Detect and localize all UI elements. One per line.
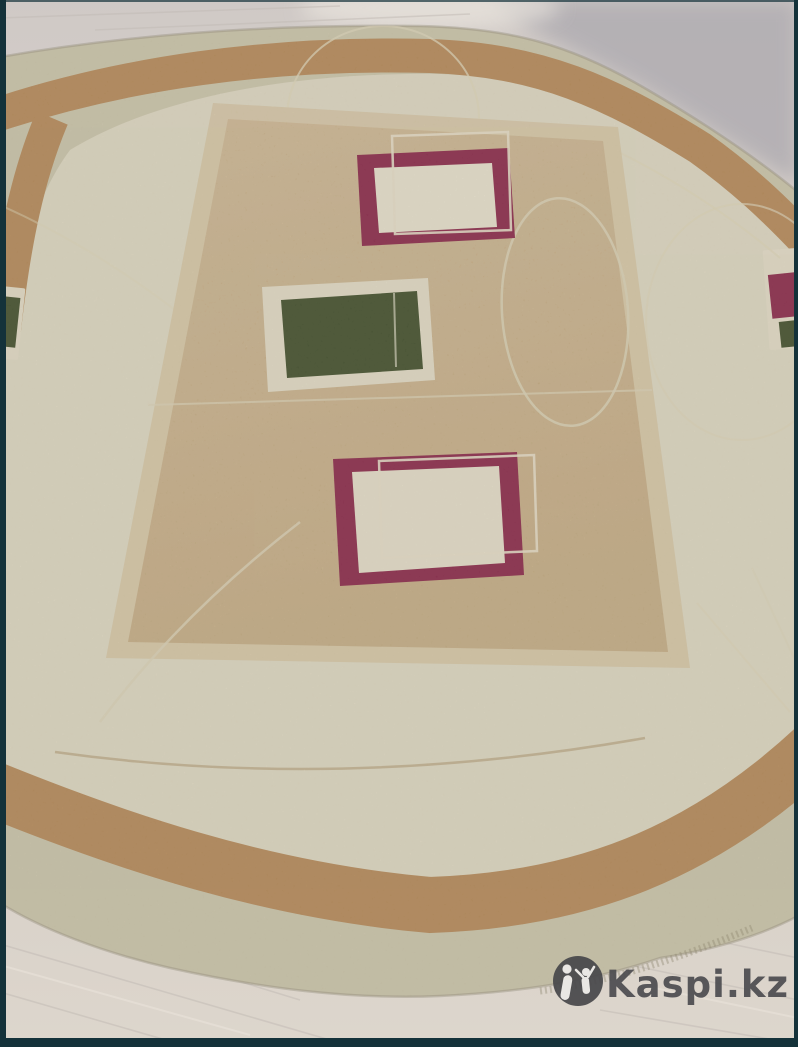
rug-product-photo: Kaspi.kz <box>0 0 798 1047</box>
rug-texture-light <box>0 0 798 1047</box>
photo-border-right <box>794 0 798 1047</box>
kaspi-logo-badge <box>553 956 603 1006</box>
photo-border-top <box>0 0 798 2</box>
oval-rug <box>0 0 798 1047</box>
photo-canvas: Kaspi.kz <box>0 0 798 1047</box>
kaspi-watermark-text: Kaspi.kz <box>606 963 789 1006</box>
photo-border-left <box>0 0 6 1047</box>
kaspi-watermark: Kaspi.kz <box>553 956 789 1006</box>
photo-border-bottom <box>0 1038 798 1047</box>
